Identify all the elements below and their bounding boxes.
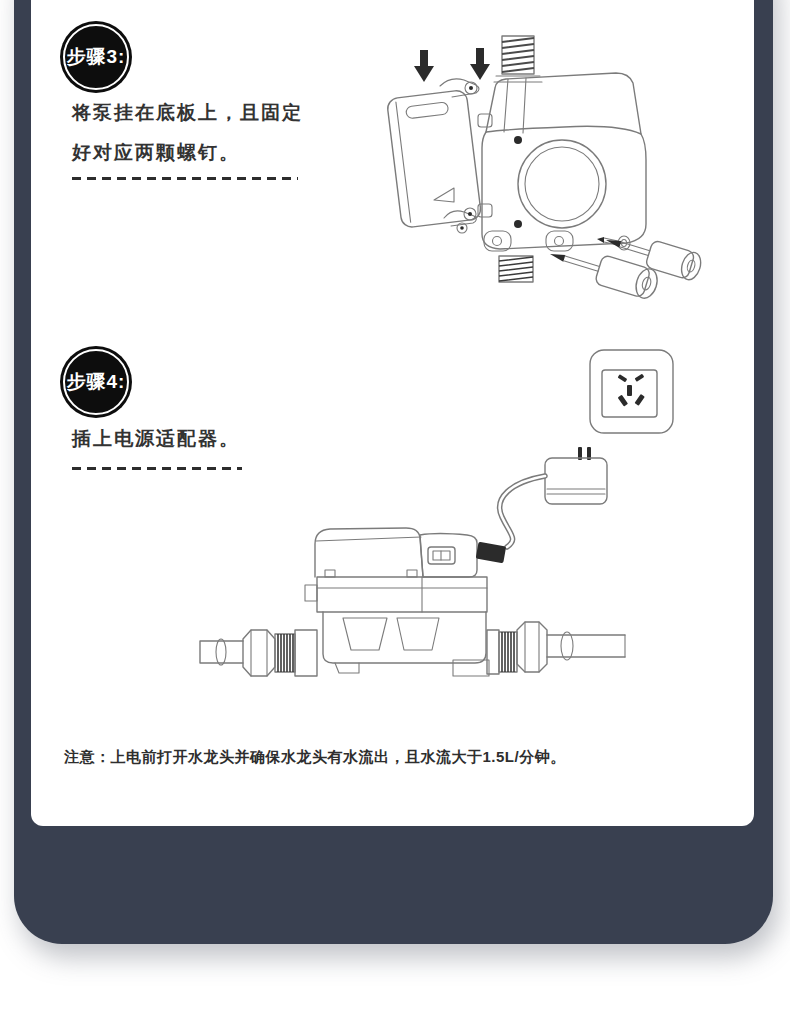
instruction-page: 步骤3: 将泵挂在底板上，且固定 好对应两颗螺钉。 — [0, 0, 790, 1016]
step4-badge: 步骤4: — [60, 346, 132, 418]
step3-badge-label: 步骤3: — [67, 44, 126, 70]
note-text: 注意：上电前打开水龙头并确保水龙头有水流出，且水流大于1.5L/分钟。 — [64, 748, 566, 767]
baseplate-drawing — [386, 79, 492, 233]
pump-power-connector — [476, 542, 507, 564]
power-adapter-icon — [545, 447, 607, 504]
step3-text-line2: 好对应两颗螺钉。 — [72, 133, 303, 173]
installed-pump-drawing — [305, 528, 506, 676]
pump-mounting-illustration — [378, 28, 728, 318]
screw-anchor-icon — [602, 227, 704, 282]
pipe-drawing — [200, 622, 625, 676]
power-cable — [500, 476, 545, 547]
step3-text: 将泵挂在底板上，且固定 好对应两颗螺钉。 — [72, 93, 303, 173]
step3-badge: 步骤3: — [60, 21, 132, 93]
power-connection-illustration — [185, 342, 690, 692]
step3-text-line1: 将泵挂在底板上，且固定 — [72, 93, 303, 133]
step3-divider — [72, 177, 298, 180]
step4-badge-label: 步骤4: — [67, 369, 126, 395]
down-arrow-icon — [414, 50, 434, 82]
down-arrow-icon — [470, 48, 490, 80]
power-outlet-icon — [590, 350, 673, 433]
